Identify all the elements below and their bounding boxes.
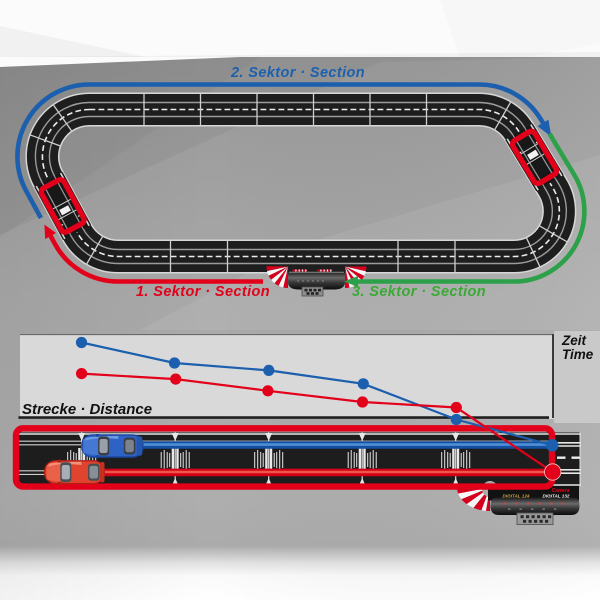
svg-text:1. Sektor · Section: 1. Sektor · Section	[136, 284, 270, 300]
svg-text:3. Sektor · Section: 3. Sektor · Section	[352, 284, 486, 300]
svg-text:Carrera: Carrera	[552, 488, 570, 494]
svg-text:Time: Time	[562, 347, 594, 362]
svg-text:2. Sektor · Section: 2. Sektor · Section	[230, 65, 365, 81]
svg-text:Zeit: Zeit	[561, 333, 587, 348]
svg-text:Strecke · Distance: Strecke · Distance	[22, 401, 152, 418]
